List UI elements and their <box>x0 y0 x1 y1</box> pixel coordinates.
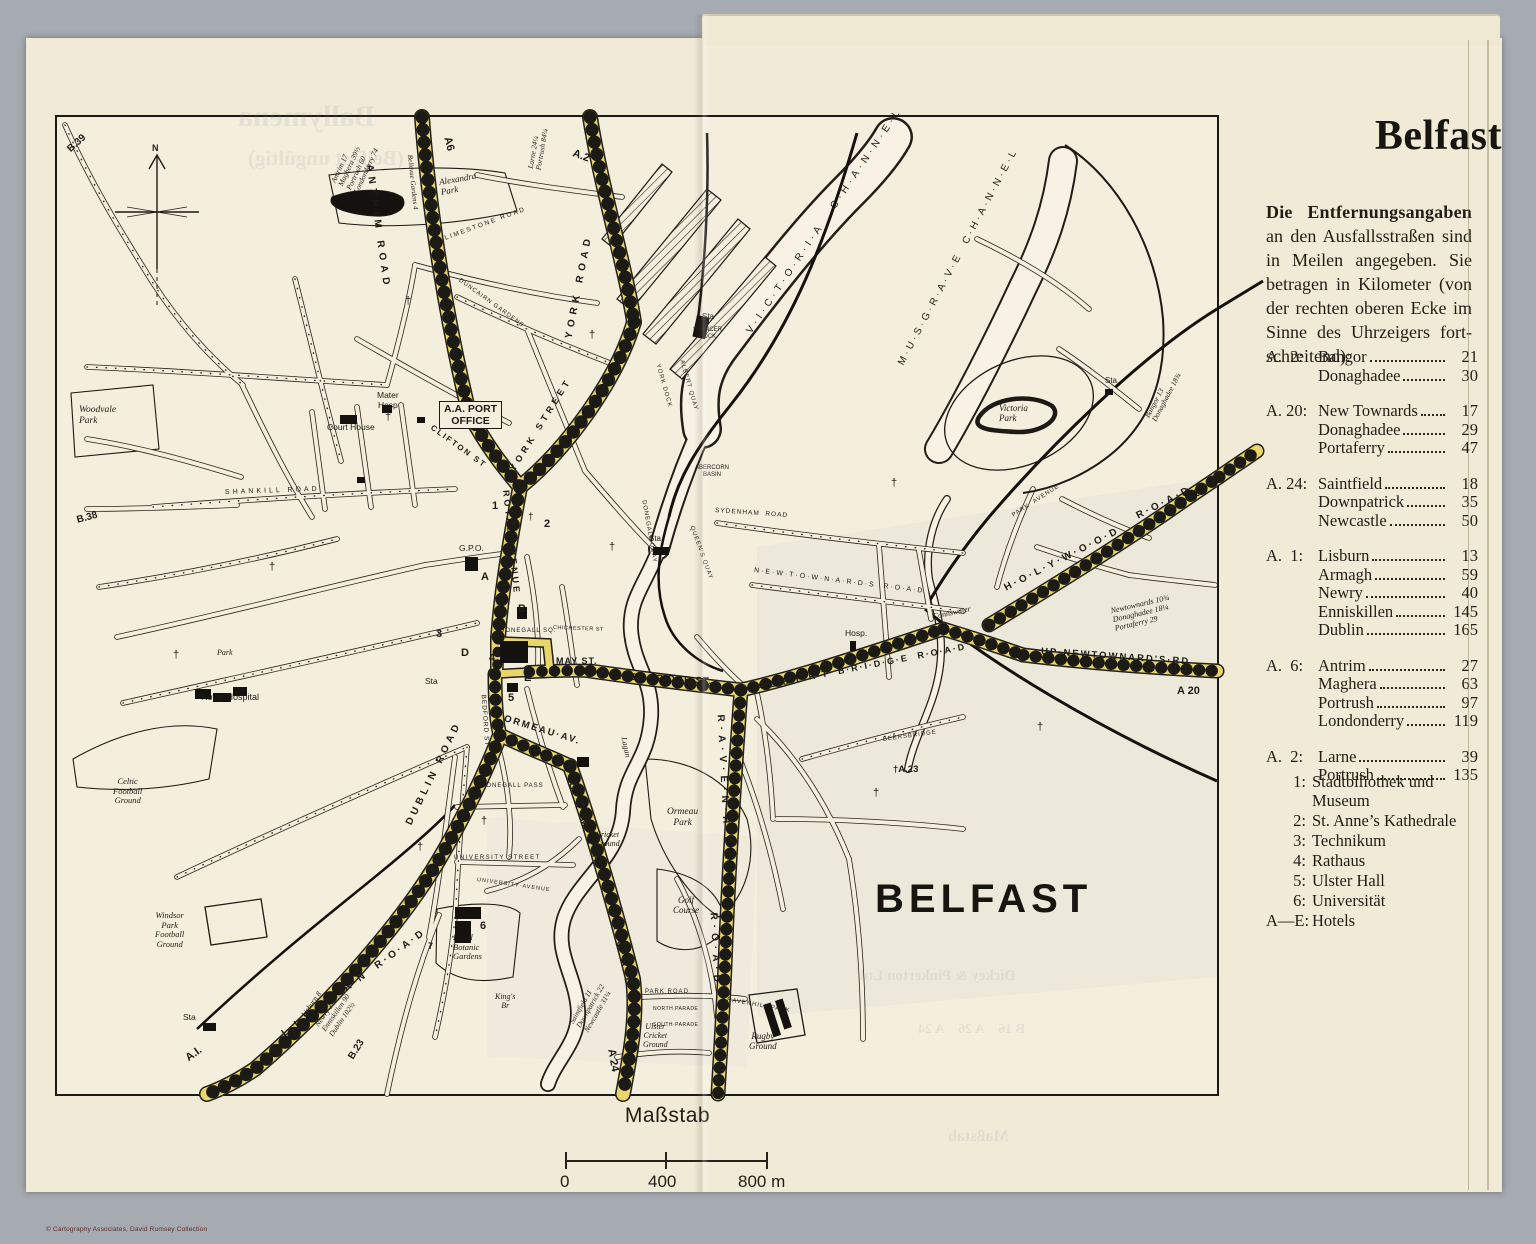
legend-row: 3:Technikum <box>1266 831 1480 850</box>
destination: Donaghadee <box>1318 421 1400 440</box>
legend-row: 4:Rathaus <box>1266 851 1480 870</box>
destination: Donaghadee <box>1318 367 1400 386</box>
distance-row: Dublin165 <box>1266 621 1478 640</box>
building-block <box>517 607 527 619</box>
right-page-top-edge <box>702 14 1500 46</box>
legend-text: Universität <box>1312 891 1468 910</box>
book-fold-shadow <box>694 14 710 1192</box>
legend-row: 2:St. Anne’s Kathedrale <box>1266 811 1480 830</box>
distance-row: Portaferry47 <box>1266 439 1478 458</box>
distance-km: 97 <box>1448 694 1478 713</box>
building-block <box>357 477 365 483</box>
legend-text: Ulster Hall <box>1312 871 1468 890</box>
building-block <box>850 641 856 651</box>
distance-row: A. 2:Larne39 <box>1266 748 1478 767</box>
dotted-leader <box>1359 760 1445 762</box>
distance-group: A. 2:Bangor21Donaghadee30 <box>1266 348 1478 385</box>
distance-row: Portrush97 <box>1266 694 1478 713</box>
destination: Armagh <box>1318 566 1372 585</box>
legend-row: A—E:Hotels <box>1266 911 1480 930</box>
dotted-leader <box>1367 633 1445 635</box>
dotted-leader <box>1372 559 1445 561</box>
destination: Lisburn <box>1318 547 1369 566</box>
intro-body: an den Ausfallsstraßen sind in Meilen an… <box>1266 226 1472 366</box>
distance-km: 165 <box>1448 621 1478 640</box>
legend-text: Hotels <box>1312 911 1468 930</box>
distance-table: A. 2:Bangor21Donaghadee30A. 20:New Towna… <box>1266 348 1478 802</box>
legend-text: Rathaus <box>1312 851 1468 870</box>
route-code: A. 1: <box>1266 547 1318 566</box>
copyright-note: © Cartography Associates, David Rumsey C… <box>46 1226 207 1233</box>
building-block <box>382 405 392 413</box>
destination: New Townards <box>1318 402 1418 421</box>
building-block <box>1105 389 1113 395</box>
distance-row: Armagh59 <box>1266 566 1478 585</box>
distance-row: A. 20:New Townards17 <box>1266 402 1478 421</box>
legend-key: 2: <box>1266 811 1312 830</box>
dotted-leader <box>1390 524 1445 526</box>
building-block <box>500 641 528 663</box>
distance-km: 21 <box>1448 348 1478 367</box>
distance-km: 30 <box>1448 367 1478 386</box>
scanned-book-spread: A6ANTRIM ROADBellevue Gardens 4Antrim 17… <box>0 0 1536 1244</box>
legend-text: St. Anne’s Kathedrale <box>1312 811 1468 830</box>
legend-row: 1:Stadtbiliothek und Museum <box>1266 772 1480 810</box>
destination: Londonderry <box>1318 712 1404 731</box>
distance-km: 47 <box>1448 439 1478 458</box>
building-block <box>577 757 589 767</box>
distance-row: Newry40 <box>1266 584 1478 603</box>
dotted-leader <box>1407 724 1445 726</box>
distance-row: A. 1:Lisburn13 <box>1266 547 1478 566</box>
scale-tick-0 <box>565 1152 567 1169</box>
distance-row: Londonderry119 <box>1266 712 1478 731</box>
distance-row: Maghera63 <box>1266 675 1478 694</box>
scale-label-400: 400 <box>648 1172 676 1192</box>
destination: Dublin <box>1318 621 1364 640</box>
dotted-leader <box>1366 596 1445 598</box>
legend-key: 4: <box>1266 851 1312 870</box>
distance-group: A. 6:Antrim27Maghera63Portrush97Londonde… <box>1266 657 1478 731</box>
distance-km: 63 <box>1448 675 1478 694</box>
dotted-leader <box>1388 451 1445 453</box>
legend-key: 1: <box>1266 772 1312 810</box>
distance-group: A. 24:Saintfield18Downpatrick35Newcastle… <box>1266 475 1478 531</box>
building-block <box>507 683 518 692</box>
distance-km: 18 <box>1448 475 1478 494</box>
destination: Newcastle <box>1318 512 1387 531</box>
dotted-leader <box>1385 487 1445 489</box>
scale-label-800: 800 m <box>738 1172 785 1192</box>
destination: Portrush <box>1318 694 1374 713</box>
destination: Maghera <box>1318 675 1377 694</box>
building-block <box>213 693 231 702</box>
dotted-leader <box>1403 379 1445 381</box>
distance-km: 29 <box>1448 421 1478 440</box>
legend-row: 6:Universität <box>1266 891 1480 910</box>
distance-row: Enniskillen145 <box>1266 603 1478 622</box>
dotted-leader <box>1370 360 1445 362</box>
bleedthrough-tint <box>487 477 1217 1067</box>
distance-km: 40 <box>1448 584 1478 603</box>
scale-tick-800 <box>766 1152 768 1169</box>
building-block <box>653 547 669 555</box>
destination: Antrim <box>1318 657 1366 676</box>
scale-label-0: 0 <box>560 1172 569 1192</box>
dotted-leader <box>1407 505 1445 507</box>
building-block <box>417 417 425 423</box>
building-block <box>340 415 357 424</box>
destination: Saintfield <box>1318 475 1382 494</box>
dotted-leader <box>1396 615 1445 617</box>
dotted-leader <box>1421 414 1445 416</box>
distance-row: Downpatrick35 <box>1266 493 1478 512</box>
building-block <box>233 687 247 696</box>
legend-key: A—E: <box>1266 911 1312 930</box>
intro-paragraph: Die Entfernungsangaben an den Ausfallsst… <box>1266 200 1472 368</box>
distance-km: 17 <box>1448 402 1478 421</box>
distance-row: A. 24:Saintfield18 <box>1266 475 1478 494</box>
belfast-map-drawing <box>57 117 1217 1094</box>
distance-row: Donaghadee30 <box>1266 367 1478 386</box>
distance-km: 119 <box>1448 712 1478 731</box>
scale-tick-400 <box>665 1152 667 1169</box>
distance-km: 27 <box>1448 657 1478 676</box>
route-code: A. 2: <box>1266 348 1318 367</box>
page-edge-line <box>1468 40 1469 1190</box>
destination: Enniskillen <box>1318 603 1393 622</box>
legend-key: 3: <box>1266 831 1312 850</box>
dotted-leader <box>1369 669 1445 671</box>
legend-key: 5: <box>1266 871 1312 890</box>
destination: Downpatrick <box>1318 493 1404 512</box>
building-block <box>195 689 211 699</box>
map-legend: 1:Stadtbiliothek und Museum2:St. Anne’s … <box>1266 772 1480 931</box>
distance-row: A. 2:Bangor21 <box>1266 348 1478 367</box>
distance-group: A. 1:Lisburn13Armagh59Newry40Enniskillen… <box>1266 547 1478 640</box>
distance-row: Newcastle50 <box>1266 512 1478 531</box>
destination: Portaferry <box>1318 439 1385 458</box>
distance-group: A. 20:New Townards17Donaghadee29Portafer… <box>1266 402 1478 458</box>
distance-km: 145 <box>1448 603 1478 622</box>
building-block <box>455 907 481 919</box>
legend-text: Stadtbiliothek und Museum <box>1312 772 1468 810</box>
legend-key: 6: <box>1266 891 1312 910</box>
destination: Bangor <box>1318 348 1367 367</box>
intro-lead: Die Entfernungsangaben <box>1266 202 1472 222</box>
distance-km: 13 <box>1448 547 1478 566</box>
dotted-leader <box>1380 687 1445 689</box>
dotted-leader <box>1375 578 1445 580</box>
map-frame: A6ANTRIM ROADBellevue Gardens 4Antrim 17… <box>55 115 1219 1096</box>
distance-row: A. 6:Antrim27 <box>1266 657 1478 676</box>
scale-title: Maßstab <box>565 1104 770 1128</box>
route-code: A. 24: <box>1266 475 1318 494</box>
building-block <box>455 921 471 943</box>
building-block <box>203 1023 216 1031</box>
route-code: A. 20: <box>1266 402 1318 421</box>
scale-bar <box>565 1152 768 1168</box>
destination: Larne <box>1318 748 1356 767</box>
page-title: Belfast <box>1290 112 1502 160</box>
distance-row: Donaghadee29 <box>1266 421 1478 440</box>
destination: Newry <box>1318 584 1363 603</box>
route-code: A. 6: <box>1266 657 1318 676</box>
legend-text: Technikum <box>1312 831 1468 850</box>
dotted-leader <box>1377 706 1445 708</box>
legend-row: 5:Ulster Hall <box>1266 871 1480 890</box>
distance-km: 59 <box>1448 566 1478 585</box>
building-block <box>465 557 478 571</box>
distance-km: 35 <box>1448 493 1478 512</box>
alexandra-park-pond <box>331 190 404 216</box>
route-code: A. 2: <box>1266 748 1318 767</box>
page-edge-line <box>1487 40 1489 1190</box>
distance-km: 39 <box>1448 748 1478 767</box>
distance-km: 50 <box>1448 512 1478 531</box>
dotted-leader <box>1403 433 1445 435</box>
